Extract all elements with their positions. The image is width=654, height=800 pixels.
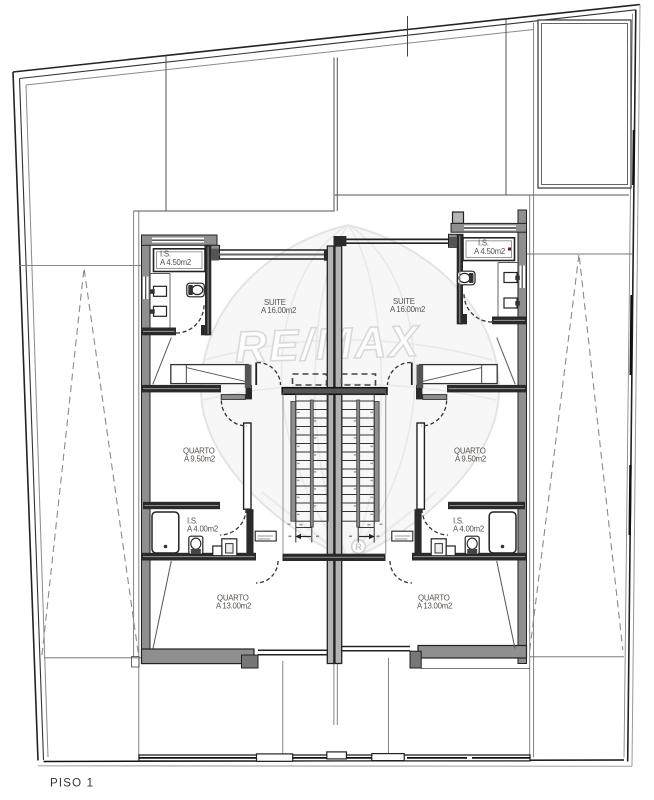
svg-text:A 16.00m2: A 16.00m2 <box>261 306 296 315</box>
svg-text:A 16.00m2: A 16.00m2 <box>390 305 425 314</box>
svg-text:A 4.50m2: A 4.50m2 <box>160 258 191 267</box>
svg-text:A 13.00m2: A 13.00m2 <box>216 602 251 611</box>
svg-text:A 4.00m2: A 4.00m2 <box>453 525 484 534</box>
svg-text:PISO 1: PISO 1 <box>50 778 94 790</box>
svg-text:A 9.50m2: A 9.50m2 <box>184 455 215 464</box>
svg-text:R: R <box>355 542 362 552</box>
svg-text:A 13.00m2: A 13.00m2 <box>417 602 452 611</box>
svg-text:A 9.50m2: A 9.50m2 <box>455 455 486 464</box>
svg-text:A 4.00m2: A 4.00m2 <box>187 525 218 534</box>
svg-text:A 4.50m2: A 4.50m2 <box>474 247 505 256</box>
